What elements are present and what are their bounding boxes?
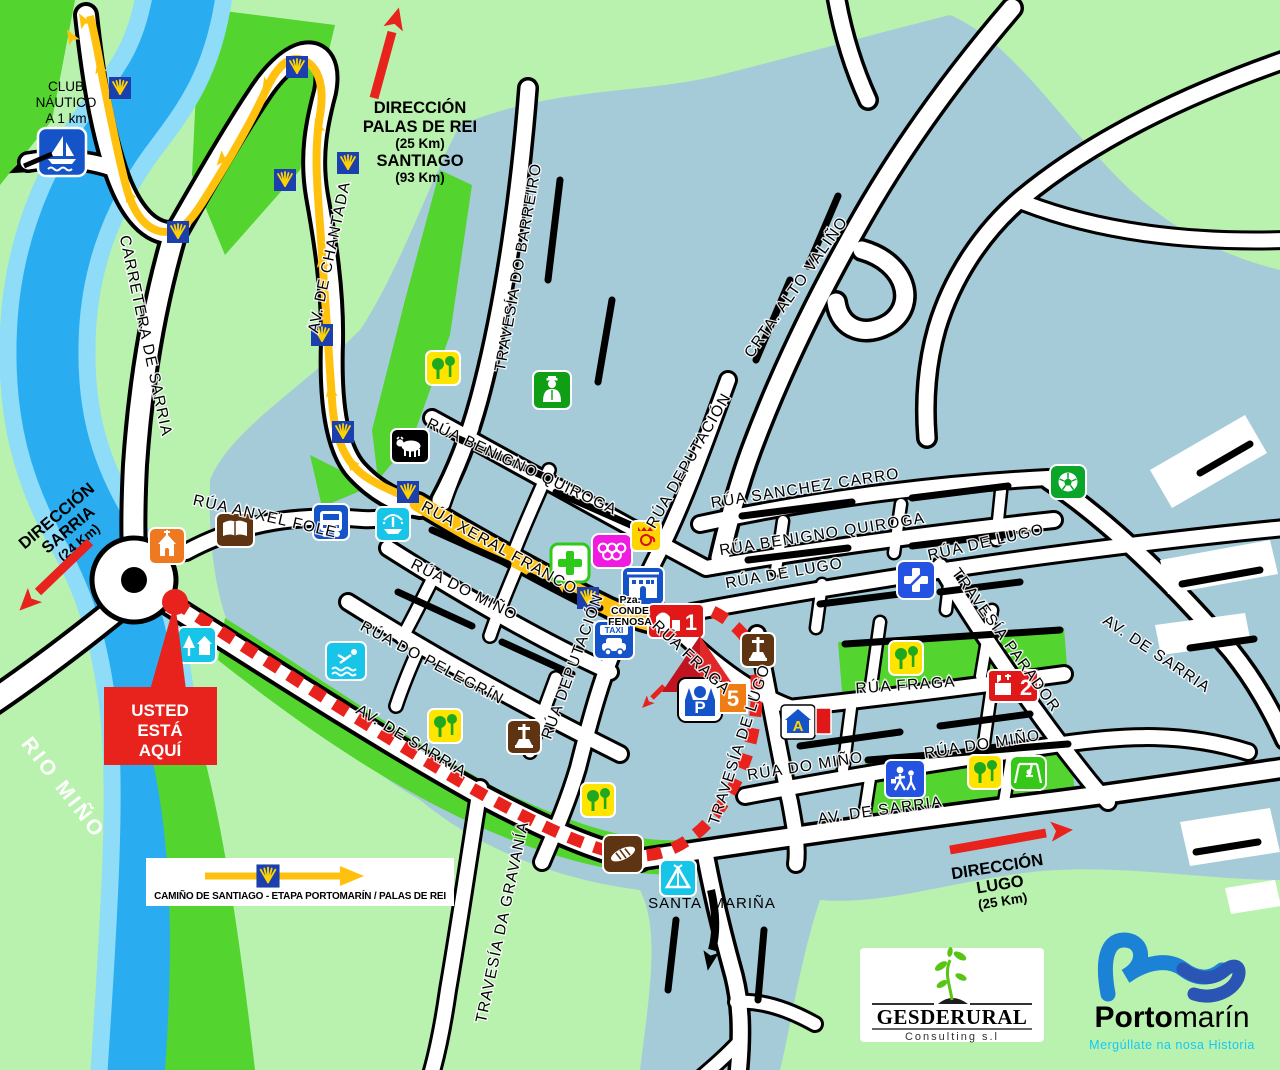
palas-line1: DIRECCIÓN (374, 98, 467, 117)
palas-line5: (93 Km) (395, 170, 445, 185)
portomarin-map: TAXI 1 P 5 A 2 (0, 0, 1280, 1070)
usted-line1: USTED (131, 701, 189, 720)
park-trees-icon (968, 755, 1002, 789)
church-icon (149, 528, 185, 564)
club-line3: A 1 km (45, 111, 86, 126)
fountain-icon (376, 507, 410, 541)
gesderural-logo: GESDERURAL Consulting s.l (860, 947, 1044, 1043)
cattle-market-cow-icon (391, 429, 429, 463)
park-trees-icon (428, 709, 462, 743)
legend-shell-icon (256, 864, 279, 887)
map-canvas: TAXI 1 P 5 A 2 (0, 0, 1280, 1070)
usted-line3: AQUÍ (139, 741, 183, 760)
albergue-icon: A (781, 705, 815, 739)
club-nautico-sailboat-icon (38, 128, 86, 176)
sports-olympic-rings-icon (592, 534, 632, 568)
gesderural-subtitle: Consulting s.l (905, 1031, 999, 1043)
camping-area-icon (178, 627, 216, 663)
scallop-shell-icon (286, 56, 308, 78)
palas-line4: SANTIAGO (376, 152, 463, 170)
portomarin-name: Portomarín (1094, 1001, 1249, 1034)
albergue-flag (816, 708, 831, 734)
health-center-cross-icon (897, 561, 935, 599)
albergue-letter: A (793, 718, 804, 735)
bakery-bread-icon (603, 835, 643, 873)
club-line2: NÁUTICO (36, 95, 97, 110)
club-line1: CLUB (48, 79, 84, 94)
scallop-shell-icon (337, 152, 359, 174)
scallop-shell-icon (397, 481, 419, 503)
camping-tent-icon (660, 860, 696, 896)
monument-1-number: 1 (685, 610, 697, 635)
scallop-shell-icon (109, 77, 131, 99)
park-trees-icon (581, 783, 615, 817)
palas-line3: (25 Km) (395, 136, 445, 151)
school-crossing-icon (885, 760, 925, 798)
cruceiro-cross-icon (507, 720, 541, 754)
scallop-shell-icon (167, 221, 189, 243)
parking-letter: P (694, 698, 705, 717)
legend: CAMIÑO DE SANTIAGO - ETAPA PORTOMARÍN / … (146, 858, 454, 906)
palas-line2: PALAS DE REI (363, 118, 477, 136)
usted-line2: ESTÁ (137, 721, 182, 740)
scallop-shell-icon (332, 421, 354, 443)
plaza-line3: FENOSA (608, 616, 652, 628)
football-field-icon (1050, 465, 1086, 499)
park-trees-icon (889, 641, 923, 675)
scallop-shell-icon (274, 169, 296, 191)
cruceiro-cross-icon (741, 633, 775, 667)
playground-swing-icon (1010, 756, 1046, 790)
gesderural-name: GESDERURAL (877, 1005, 1028, 1029)
swimming-pool-icon (326, 642, 366, 680)
portomarin-name-bold: Porto (1094, 1001, 1172, 1034)
park-trees-icon (426, 351, 460, 385)
portomarin-name-light: marín (1173, 1001, 1250, 1034)
portomarin-tagline: Mergúllate na nosa Historia (1089, 1038, 1255, 1052)
guardia-civil-icon (533, 371, 571, 409)
legend-caption: CAMIÑO DE SANTIAGO - ETAPA PORTOMARÍN / … (154, 889, 446, 902)
